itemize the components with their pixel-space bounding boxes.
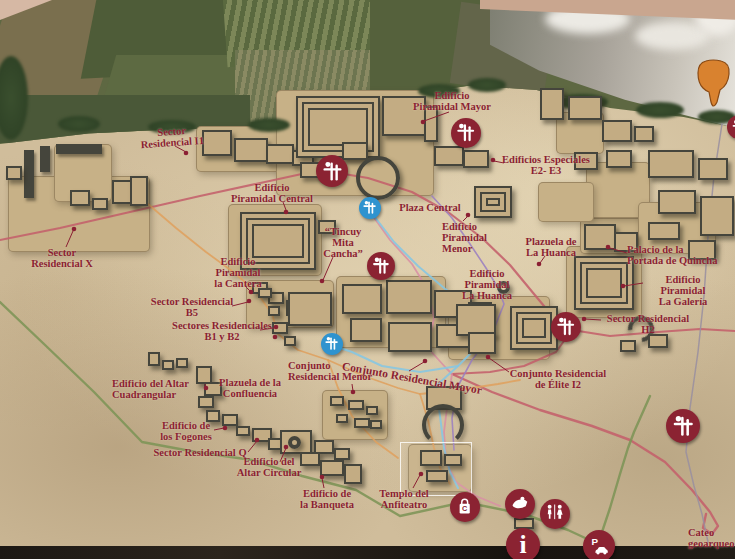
map-label-palacio-de-la-portada-de-quincha: Palacio de la Portada de Quincha	[627, 244, 717, 266]
svg-text:C: C	[462, 504, 468, 513]
lookout-icon	[367, 252, 395, 280]
map-label-edificio-piramidal-mayor: Edificio Piramidal Mayor	[413, 90, 491, 112]
restrooms-icon	[540, 499, 570, 529]
map-label-sectores-residenciales-b1-b2: Sectores Residenciales B1 y B2	[172, 320, 272, 342]
map-label-sector-residencial-q: Sector Residencial Q	[153, 447, 246, 458]
map-label-tincuy-mita-cancha: “Tincuy Mita Cancha”	[323, 226, 363, 260]
map-label-plazuela-de-la-confluencia: Plazuela de la Confluencia	[219, 377, 281, 399]
map-label-sector-residencial-i1: Sector Residencial I1	[140, 124, 205, 151]
rest-area-icon	[321, 333, 343, 355]
label-leader-line	[585, 319, 601, 320]
rest-area-icon	[359, 197, 381, 219]
marker-dot	[249, 290, 254, 295]
parking-icon: P	[583, 530, 615, 559]
marker-dot	[204, 386, 209, 391]
label-leaders-layer	[0, 0, 735, 559]
map-label-sector-residencial-h2: Sector Residencial H2	[605, 313, 692, 335]
map-label-conjunto-residencial-menor: Conjunto Residencial Menor	[288, 360, 372, 382]
marker-dot	[491, 158, 496, 163]
lookout-icon	[551, 312, 581, 342]
marker-dot	[273, 335, 278, 340]
marker-dot	[466, 213, 471, 218]
marker-dot	[255, 438, 260, 443]
label-leader-line	[413, 475, 420, 488]
map-label-edificio-piramidal-menor: Edificio Piramidal Menor	[442, 221, 487, 255]
lookout-icon	[666, 409, 700, 443]
map-label-sector-residencial-b5: Sector Residencial B5	[151, 296, 233, 318]
marker-dot	[274, 325, 279, 330]
map-label-plaza-central: Plaza Central	[399, 202, 461, 213]
map-label-edificio-piramidal-central: Edificio Piramidal Central	[231, 182, 313, 204]
map-label-edificio-del-altar-cuadrangular: Edificio del Altar Cuadrangular	[112, 378, 189, 400]
marker-dot	[419, 472, 424, 477]
map-label-templo-del-anfiteatro: Templo del Anfiteatro	[379, 488, 429, 510]
label-leader-line	[248, 441, 257, 452]
label-leader-line	[424, 112, 449, 121]
marker-dot	[537, 262, 542, 267]
marker-dot	[184, 151, 189, 156]
handicraft-icon	[505, 489, 535, 519]
label-leader-line	[232, 302, 248, 306]
label-leader-line	[323, 257, 333, 280]
archaeological-site-map-photo: Sector Residencial I1Edificio Piramidal …	[0, 0, 735, 559]
lookout-icon	[451, 118, 481, 148]
marker-dot	[423, 359, 428, 364]
label-leader-line	[610, 248, 627, 253]
panel-frame-bottom	[0, 546, 735, 559]
marker-dot	[606, 245, 611, 250]
map-label-cateo-geoarqueologico: Cateo geoarqueo	[688, 527, 734, 549]
label-leader-line	[409, 362, 424, 371]
map-label-sector-residencial-x: Sector Residencial X	[31, 247, 93, 269]
marker-dot	[486, 355, 491, 360]
marker-dot	[247, 299, 252, 304]
label-leader-line	[624, 283, 643, 286]
marker-dot	[351, 390, 356, 395]
map-label-edificio-del-altar-circular: Edificio del Altar Circular	[237, 456, 302, 478]
marker-dot	[621, 284, 626, 289]
label-leader-line	[66, 231, 73, 247]
lookout-icon	[316, 155, 348, 187]
marker-dot	[582, 317, 587, 322]
label-leader-line	[322, 478, 324, 488]
marker-dot	[284, 445, 289, 450]
map-label-conjunto-residencial-de-elite-i2: Conjunto Residencial de Élite I2	[510, 368, 607, 390]
map-label-edificio-piramidal-la-huanca: Edificio Piramidal La Huanca	[462, 268, 512, 302]
map-label-plazuela-de-la-huanca: Plazuela de La Huanca	[525, 236, 576, 258]
map-label-edificios-especiales-e2-e3: Edificios Especiales E2- E3	[502, 154, 590, 176]
pointer-hand-icon	[694, 58, 734, 126]
marker-dot	[284, 210, 289, 215]
label-leader-line	[214, 428, 224, 430]
marker-dot	[223, 426, 228, 431]
marker-dot	[320, 475, 325, 480]
map-label-edificio-piramidal-la-cantera: Edificio Piramidal la Cantera	[214, 256, 262, 290]
marker-dot	[72, 227, 77, 232]
map-label-edificio-de-los-fogones: Edificio de los Fogones	[160, 420, 212, 442]
map-label-edificio-de-la-banqueta: Edificio de la Banqueta	[300, 488, 354, 510]
svg-text:P: P	[591, 535, 598, 546]
map-label-edificio-piramidal-la-galeria: Edificio Piramidal La Galería	[657, 274, 709, 308]
information-icon: i	[506, 528, 540, 559]
shop-icon: C	[450, 492, 480, 522]
marker-dot	[421, 120, 426, 125]
marker-dot	[320, 279, 325, 284]
label-leader-line	[489, 358, 509, 372]
